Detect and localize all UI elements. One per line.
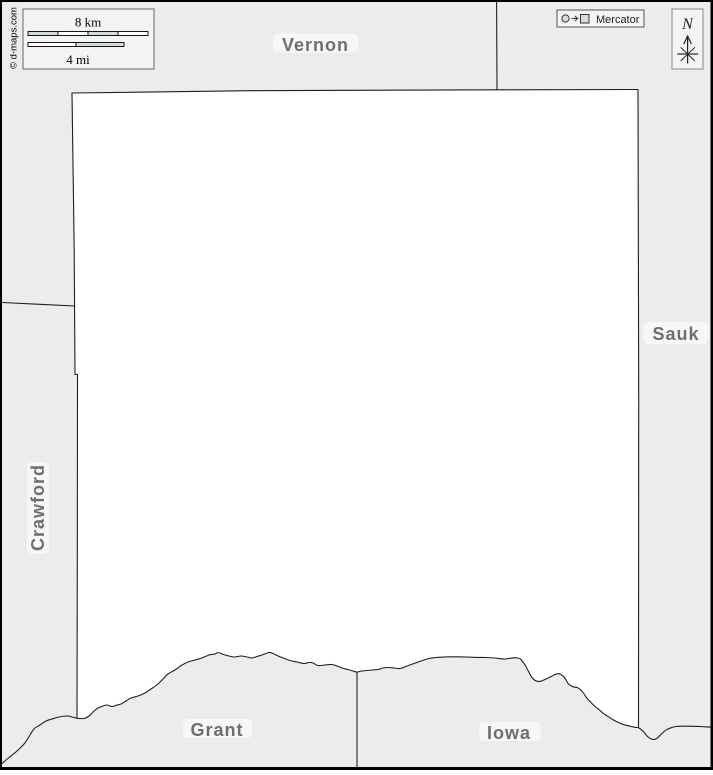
svg-text:Grant: Grant [190,720,243,740]
svg-text:8 km: 8 km [75,15,101,30]
svg-text:4 mi: 4 mi [66,52,90,67]
svg-text:© d-maps.com: © d-maps.com [9,7,20,69]
svg-text:Mercator: Mercator [596,14,640,26]
svg-text:N: N [681,16,694,33]
svg-text:Crawford: Crawford [28,464,48,551]
svg-text:Iowa: Iowa [487,723,531,743]
svg-text:Vernon: Vernon [282,35,349,55]
svg-text:Sauk: Sauk [652,324,699,344]
